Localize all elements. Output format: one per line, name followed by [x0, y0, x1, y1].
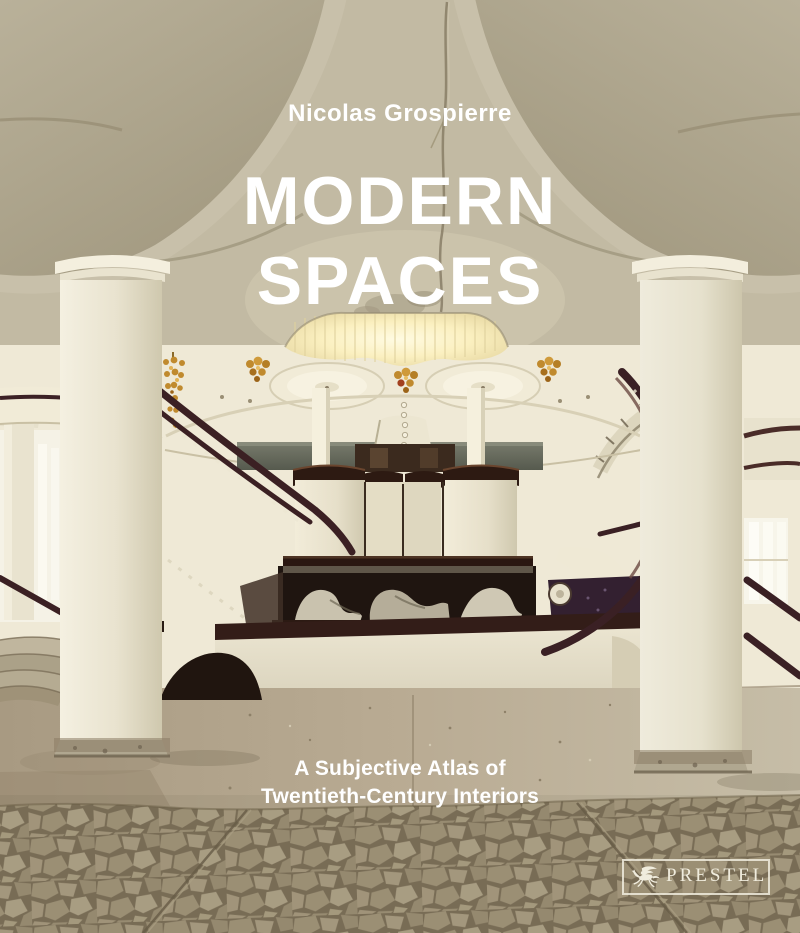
book-subtitle: A Subjective Atlas of Twentieth-Century …	[0, 755, 800, 811]
book-cover: Nicolas Grospierre MODERN SPACES A Subje…	[0, 0, 800, 933]
publisher-name: PRESTEL	[666, 865, 767, 887]
central-column-cluster	[272, 444, 544, 630]
pegasus-icon	[629, 865, 661, 889]
subtitle-line-1: A Subjective Atlas of	[0, 755, 800, 783]
book-title: MODERN SPACES	[0, 161, 800, 321]
right-ceiling-trims	[744, 418, 800, 480]
subtitle-line-2: Twentieth-Century Interiors	[0, 783, 800, 811]
author-name: Nicolas Grospierre	[0, 99, 800, 129]
foreground-column-right	[632, 255, 752, 772]
sculptural-base	[278, 566, 536, 622]
title-line-2: SPACES	[0, 241, 800, 321]
title-line-1: MODERN	[0, 161, 800, 241]
publisher-logo: PRESTEL	[622, 859, 770, 895]
foreground-column-left	[54, 255, 170, 756]
